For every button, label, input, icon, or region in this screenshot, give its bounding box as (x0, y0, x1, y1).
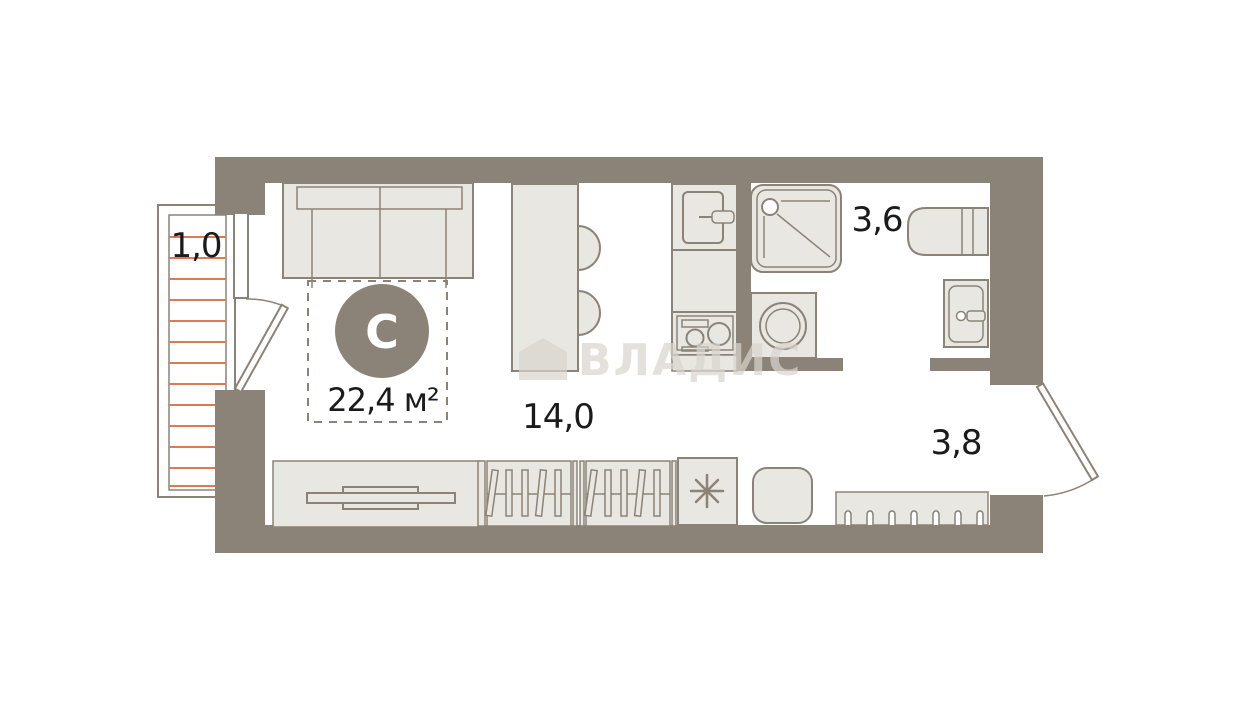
area-annotation: С 22,4 м² (308, 281, 447, 422)
floor-plan-svg: ВЛАДИС С 22,4 м² 1,0 14,0 3,6 3,8 (0, 0, 1254, 711)
shoe-bench (836, 492, 988, 525)
faucet-icon (712, 211, 734, 223)
wall-right-upper (990, 157, 1043, 385)
floor-plan: ВЛАДИС С 22,4 м² 1,0 14,0 3,6 3,8 (0, 0, 1254, 711)
wardrobe (478, 461, 676, 526)
kitchen-sink (672, 184, 737, 250)
sofa (283, 183, 473, 288)
faucet-icon (967, 311, 985, 321)
fridge (678, 458, 737, 525)
wall-top (215, 157, 1043, 183)
watermark-text: ВЛАДИС (578, 335, 802, 386)
compass-letter: С (365, 305, 399, 359)
entrance-door-leaf (1037, 383, 1098, 480)
kitchen-counter (672, 250, 737, 312)
balcony-area-label: 1,0 (170, 226, 221, 266)
chair (578, 226, 600, 270)
faucet-icon (957, 312, 966, 321)
tv-stand (273, 461, 480, 527)
bathroom-area-label: 3,6 (851, 200, 902, 240)
entrance-door-arc (1044, 480, 1092, 496)
fridge-asterisk-icon (691, 475, 723, 507)
entrance-door (1037, 383, 1098, 496)
pouf (753, 468, 812, 523)
wall-bottom (215, 525, 1043, 553)
bathroom-sink (944, 280, 988, 347)
balcony-door (235, 299, 288, 392)
wall-top-left-block (215, 157, 265, 215)
tv-panel (307, 493, 455, 503)
hallway-area-label: 3,8 (930, 423, 981, 463)
total-area-label: 22,4 м² (327, 381, 438, 419)
wall-right-lower (990, 495, 1043, 553)
shower-head-icon (762, 199, 778, 215)
chair (578, 291, 600, 335)
toilet (908, 208, 988, 255)
balcony-window (234, 213, 248, 298)
wall-bath-stub-right (930, 358, 990, 371)
shower (751, 185, 841, 272)
living-area-label: 14,0 (522, 397, 594, 437)
balcony-door-leaf (235, 305, 288, 392)
